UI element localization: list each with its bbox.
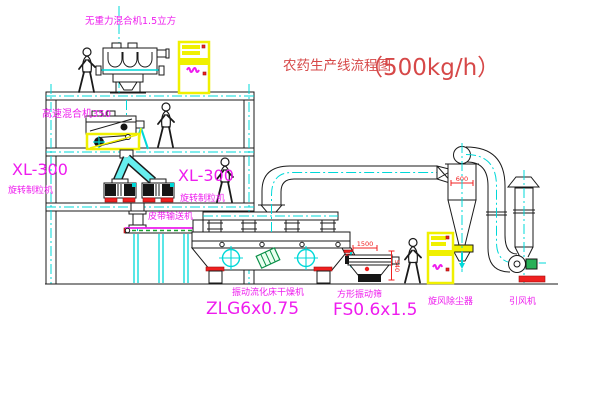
dryer-label: 振动流化床干燥机 bbox=[232, 286, 304, 298]
sieve-model: FS0.6x1.5 bbox=[333, 300, 417, 320]
granulator-right-model: XL-300 bbox=[178, 166, 234, 185]
fan-motor bbox=[526, 259, 537, 269]
sieve-length-dim: 1500 bbox=[357, 240, 374, 248]
dryer-model: ZLG6x0.75 bbox=[206, 299, 299, 319]
cyclone-label: 旋风除尘器 bbox=[428, 295, 473, 307]
drawing-title-capacity: （500kg/h） bbox=[360, 55, 500, 81]
conveyor-legs bbox=[134, 234, 188, 283]
gravity-mixer-label: 无重力混合机1.5立方 bbox=[85, 15, 176, 27]
sieve-height-dim: 540 bbox=[393, 260, 401, 272]
control-cabinet-ground bbox=[428, 233, 453, 283]
granulator-left bbox=[104, 179, 136, 202]
worker-roof bbox=[79, 48, 95, 92]
fan-label: 引风机 bbox=[509, 295, 536, 307]
granulator-right-label: 旋转制粒机 bbox=[180, 192, 225, 204]
granulator-left-label: 旋转制粒机 bbox=[8, 184, 53, 196]
granulator-right bbox=[142, 179, 174, 202]
fluid-bed-dryer bbox=[192, 212, 357, 283]
sieve-label: 方形振动筛 bbox=[337, 288, 382, 300]
granulator-left-model: XL-300 bbox=[12, 160, 68, 179]
vibrating-sieve: 1500 540 bbox=[345, 240, 401, 282]
worker-second-floor bbox=[158, 103, 174, 147]
belt-conveyor-label: 皮带输送机 bbox=[148, 210, 193, 222]
fan-base bbox=[519, 276, 545, 282]
fan-duct-and-stack bbox=[466, 147, 546, 283]
gravity-mixer bbox=[96, 43, 169, 93]
discharge-chute bbox=[129, 203, 146, 228]
dryer-feed-inlet bbox=[193, 220, 203, 232]
belt-conveyor bbox=[124, 228, 198, 283]
worker-ground bbox=[405, 239, 421, 283]
control-cabinet-top bbox=[179, 42, 209, 93]
process-flow-drawing: 600 bbox=[0, 0, 600, 403]
high-speed-mixer-label: 高速混合机350 bbox=[42, 107, 111, 120]
induced-draft-fan bbox=[509, 256, 546, 283]
